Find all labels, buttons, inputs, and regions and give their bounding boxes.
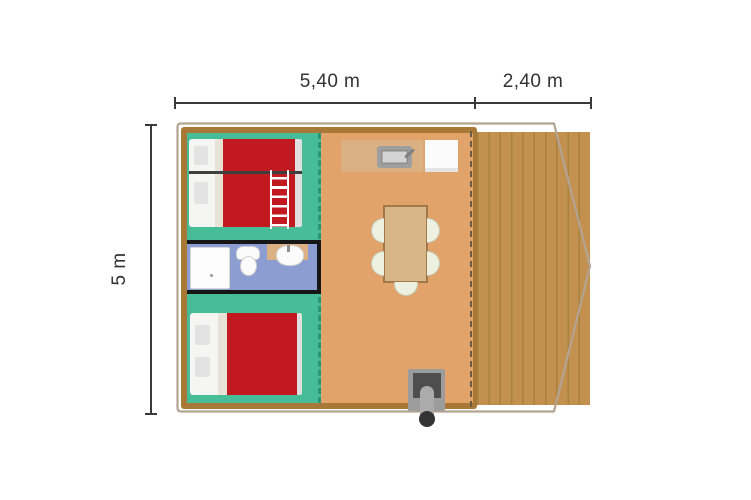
basin-tap	[287, 245, 290, 252]
pillow	[194, 146, 208, 165]
dimension-label-depth: 5 m	[109, 234, 129, 304]
shower-icon	[190, 247, 230, 289]
dimension-tick	[145, 124, 157, 126]
terrace-deck	[477, 132, 590, 405]
dimension-tick	[474, 97, 476, 109]
tent-front-dashed-line	[470, 131, 472, 407]
toilet-icon	[240, 256, 257, 276]
bed-fold	[218, 313, 227, 395]
bed-fold	[215, 139, 223, 227]
double-bed	[190, 313, 302, 395]
dining-table-icon	[383, 205, 428, 283]
shower-door-dot	[210, 274, 213, 277]
dimension-tick	[174, 97, 176, 109]
dimension-tick	[145, 413, 157, 415]
pillow	[194, 182, 208, 204]
floor-plan: 5,40 m 2,40 m 5 m	[0, 0, 751, 500]
bathroom	[187, 240, 321, 294]
bunk-bed	[189, 139, 302, 227]
dimension-line-left	[150, 125, 152, 415]
dimension-label-terrace-width: 2,40 m	[458, 71, 608, 93]
bed-footer	[297, 313, 302, 395]
pillow	[195, 357, 210, 377]
bed-blanket	[227, 313, 297, 395]
dimension-label-main-width: 5,40 m	[255, 71, 405, 93]
fridge-icon	[425, 140, 458, 172]
bed-footer	[295, 139, 302, 227]
stove-pipe-end	[419, 411, 435, 427]
dimension-tick	[590, 97, 592, 109]
ladder-icon	[270, 170, 289, 229]
washbasin-icon	[276, 245, 304, 266]
dimension-line-top	[175, 102, 592, 104]
pillow	[195, 325, 210, 345]
